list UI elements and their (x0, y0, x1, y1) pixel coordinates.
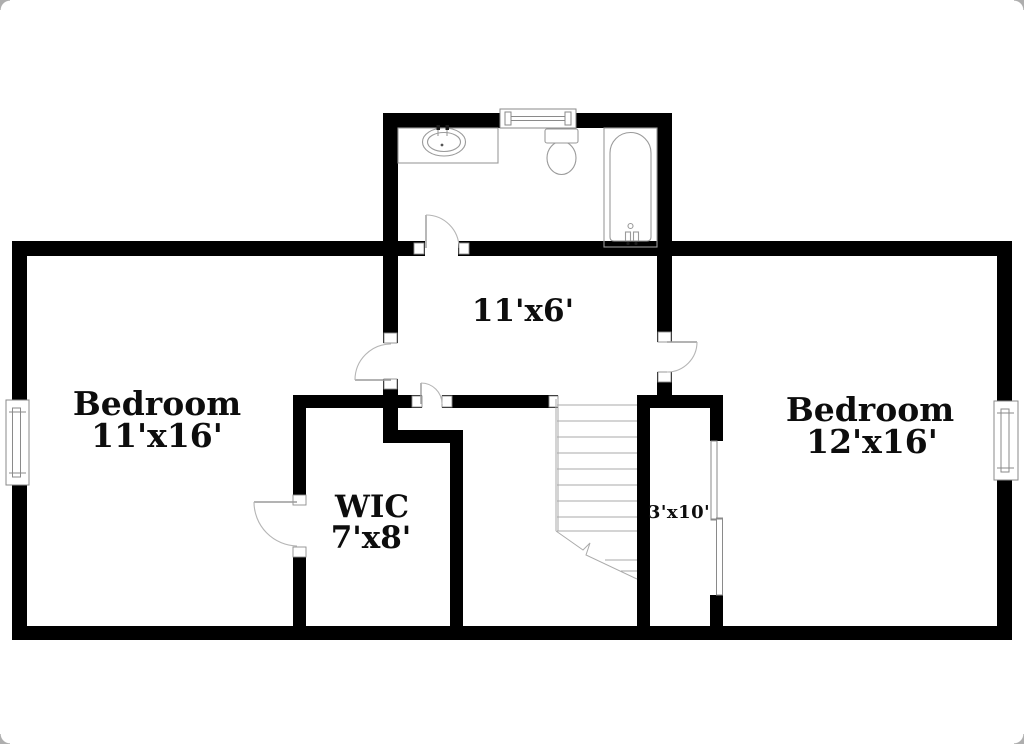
jamb (459, 243, 469, 254)
wall-niche-bottom (383, 430, 463, 443)
jamb (658, 372, 671, 382)
room-regions (27, 128, 997, 626)
screen-corner-bottom-right (1014, 734, 1024, 744)
opening-niche-door (422, 395, 442, 408)
window-icon-bathroom (500, 109, 576, 128)
wall-bottom (12, 626, 1012, 640)
label-bedroom-right-dims: 12'x16' (806, 422, 938, 461)
screen-corner-bottom-left (0, 734, 10, 744)
jamb (384, 333, 397, 343)
opening-bedroom-left-door (383, 343, 398, 379)
floorplan-canvas: Bedroom 11'x16' Bedroom 12'x16' 11'x6' W… (0, 0, 1024, 744)
window-icon-left-wall (6, 400, 29, 485)
floorplan-page: Bedroom 11'x16' Bedroom 12'x16' 11'x6' W… (0, 0, 1024, 744)
label-hallway-dims: 11'x6' (472, 293, 574, 329)
window-icon-right-wall (994, 401, 1018, 480)
opening-wic-door (293, 505, 306, 547)
opening-bedroom-right-door (657, 342, 672, 372)
wall-bathroom-left (383, 113, 398, 443)
screen-corner-top-left (0, 0, 10, 10)
wall-wic-right (450, 430, 463, 640)
jamb (293, 547, 306, 557)
screen-corner-top-right (1014, 0, 1024, 10)
label-closet-dims: 3'x10' (648, 502, 710, 523)
toilet-icon (545, 129, 578, 175)
label-wic-dims: 7'x8' (331, 520, 412, 556)
opening-bathroom-door (425, 241, 458, 256)
jamb (293, 495, 306, 505)
label-bedroom-left-dims: 11'x16' (91, 416, 223, 455)
wall-top (12, 241, 1012, 256)
jamb (442, 396, 452, 407)
jamb (414, 243, 424, 254)
jamb (658, 332, 671, 342)
jamb (549, 396, 558, 407)
